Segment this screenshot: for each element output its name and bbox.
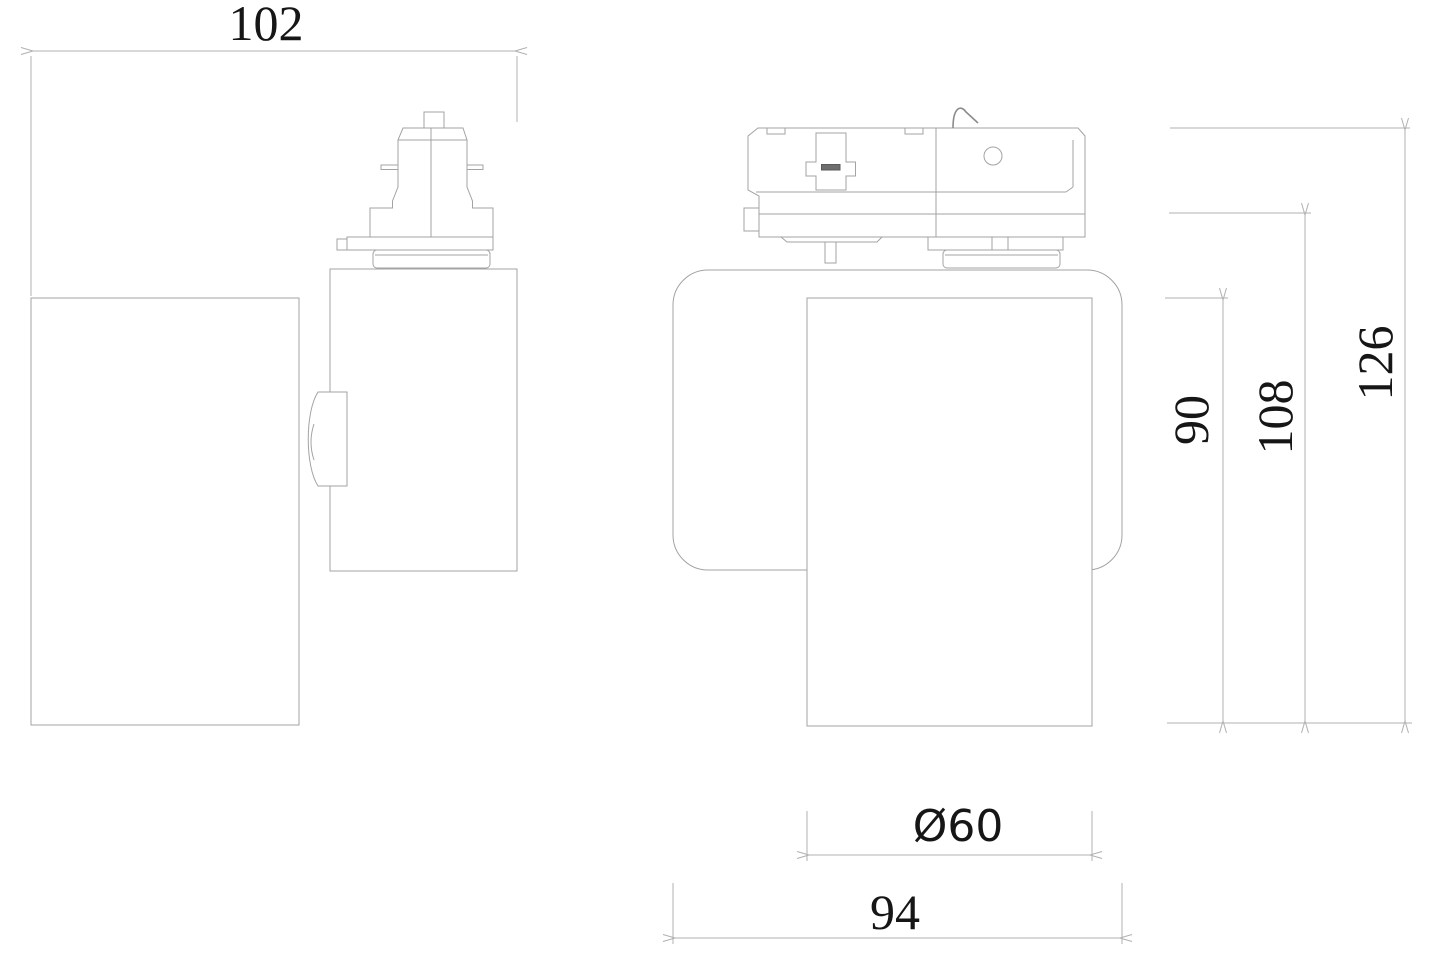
- dim-overall-width: 102: [31, 0, 517, 296]
- track-adapter-side: [337, 112, 493, 268]
- adapter-side-tab: [337, 239, 347, 250]
- adapter-shoulder-side: [398, 128, 467, 140]
- hinge-knuckle: [308, 392, 347, 486]
- dim-head-height: 90: [1163, 298, 1228, 721]
- side-view: [31, 112, 517, 725]
- dim-text-body-width: 94: [870, 884, 920, 940]
- adapter-pin-right: [467, 165, 483, 170]
- dim-text-head-height: 90: [1163, 395, 1219, 445]
- track-adapter-front: [744, 108, 1085, 268]
- technical-drawing: 102 Ø60 94 90 108: [0, 0, 1445, 975]
- adapter-screw-hole: [984, 147, 1002, 165]
- dim-body-width: 94: [673, 883, 1122, 944]
- adapter-collar-side: [373, 250, 490, 268]
- adapter-profile-right: [467, 140, 493, 237]
- drawing-canvas: 102 Ø60 94 90 108: [0, 0, 1445, 975]
- lamp-head-side: [31, 298, 299, 725]
- adapter-box-front: [748, 128, 1085, 237]
- mount-step-block: [928, 237, 1063, 250]
- adapter-top-notch-left: [767, 128, 785, 134]
- adapter-base-plate-side: [347, 237, 493, 250]
- driver-body-side: [330, 269, 517, 571]
- ground-wire-hook: [953, 108, 978, 128]
- adapter-pin-left: [381, 165, 398, 170]
- dim-text-overall-height: 126: [1347, 326, 1403, 401]
- clip-slot: [822, 165, 841, 171]
- lamp-head-front: [807, 298, 1092, 726]
- adapter-profile-left: [370, 140, 398, 237]
- front-view: [673, 108, 1122, 726]
- dim-text-overall-width: 102: [229, 0, 304, 51]
- adapter-left-tab: [744, 208, 759, 231]
- adapter-top-notch-right: [905, 128, 923, 134]
- adapter-knob-side: [424, 112, 444, 128]
- adapter-stem: [825, 242, 836, 263]
- mount-collar-front: [943, 250, 1060, 268]
- dim-body-height: 108: [1169, 213, 1311, 721]
- adapter-foot: [781, 237, 882, 242]
- dim-text-head-diameter: Ø60: [913, 801, 1004, 852]
- dim-text-body-height: 108: [1247, 380, 1303, 455]
- dim-head-diameter: Ø60: [807, 801, 1092, 861]
- adapter-inner-chamfer: [1066, 187, 1073, 192]
- locking-clip: [806, 133, 856, 190]
